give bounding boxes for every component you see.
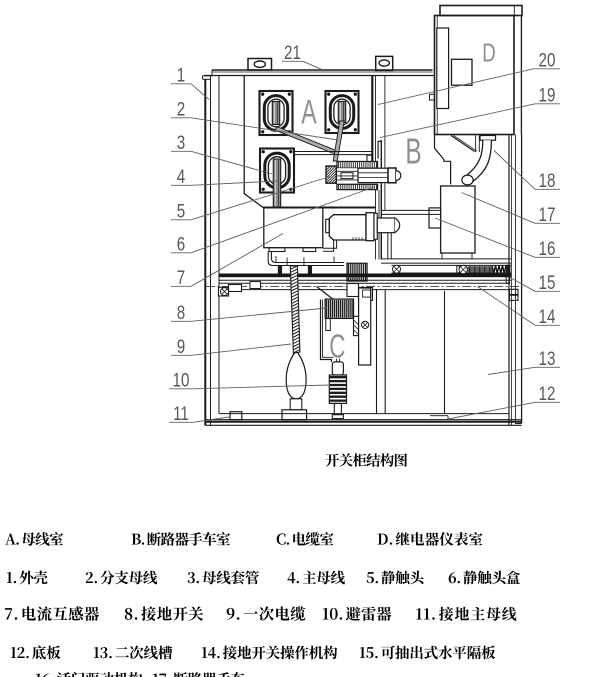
svg-text:2: 2 [177,98,185,120]
svg-text:18: 18 [539,169,556,191]
svg-text:9: 9 [177,335,185,357]
svg-text:17: 17 [539,203,556,225]
svg-text:1: 1 [177,64,185,86]
svg-text:20: 20 [539,49,556,71]
svg-text:6: 6 [177,233,185,255]
svg-text:12: 12 [539,382,556,404]
svg-text:5: 5 [177,200,185,222]
svg-text:A: A [301,94,317,131]
svg-text:B: B [405,131,421,172]
svg-text:7: 7 [177,266,185,288]
svg-text:19: 19 [539,84,556,106]
svg-text:15: 15 [539,271,556,293]
svg-text:10: 10 [173,369,190,391]
svg-text:4: 4 [177,165,186,187]
svg-text:8: 8 [177,301,185,323]
svg-text:21: 21 [284,41,301,63]
svg-text:14: 14 [539,305,556,327]
svg-text:C: C [329,327,345,364]
svg-text:3: 3 [177,131,185,153]
svg-text:13: 13 [539,347,556,369]
svg-text:16: 16 [539,237,556,259]
svg-text:D: D [482,37,496,67]
svg-text:11: 11 [173,402,189,424]
